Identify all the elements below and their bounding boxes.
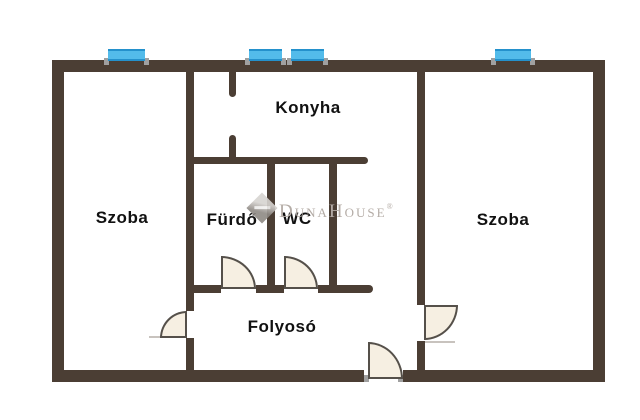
room-label-furdo: Fürdő xyxy=(207,210,258,230)
wall-left-room-divider-upper xyxy=(186,66,194,311)
room-label-szoba-left: Szoba xyxy=(96,208,149,228)
watermark-text: DunaHouse® xyxy=(279,197,393,221)
window-left-room xyxy=(108,49,145,61)
wall-exterior-bottom-left xyxy=(52,370,364,382)
window-kitchen-left-pane xyxy=(249,49,282,61)
wall-exterior-left xyxy=(52,60,64,382)
room-label-folyoso: Folyosó xyxy=(248,317,317,337)
wall-exterior-bottom-right xyxy=(403,370,605,382)
wall-kitchen-stub-upper xyxy=(229,66,236,97)
wall-hallway-top-a xyxy=(190,285,221,293)
wall-left-room-divider-lower xyxy=(186,338,194,374)
door-threshold xyxy=(425,341,455,343)
wall-wc-right xyxy=(329,160,337,290)
wall-right-room-divider-lower xyxy=(417,341,425,374)
door-entrance xyxy=(368,342,403,379)
room-label-konyha: Konyha xyxy=(275,98,340,118)
wall-exterior-top xyxy=(52,60,605,72)
room-label-szoba-right: Szoba xyxy=(477,210,530,230)
window-right-room xyxy=(495,49,531,61)
door-bathroom xyxy=(221,256,256,289)
watermark-brand-part2: House xyxy=(329,201,387,222)
wall-kitchen-stub-lower xyxy=(229,135,236,159)
watermark-brand-part1: Duna xyxy=(279,201,329,222)
wall-exterior-right xyxy=(593,60,605,382)
wall-hallway-top-c xyxy=(318,285,373,293)
registered-mark: ® xyxy=(387,202,393,211)
window-kitchen-right-pane xyxy=(291,49,324,61)
floor-plan: DunaHouse® Szoba Konyha Fürdő WC Szoba F… xyxy=(0,0,640,420)
door-left-room xyxy=(160,311,187,338)
door-right-room xyxy=(424,305,458,340)
wall-right-room-divider-upper xyxy=(417,66,425,305)
wall-kitchen-bottom xyxy=(186,157,368,164)
wall-hallway-top-b xyxy=(256,285,284,293)
door-wc xyxy=(284,256,318,289)
wall-bathroom-wc-divider xyxy=(267,160,275,288)
